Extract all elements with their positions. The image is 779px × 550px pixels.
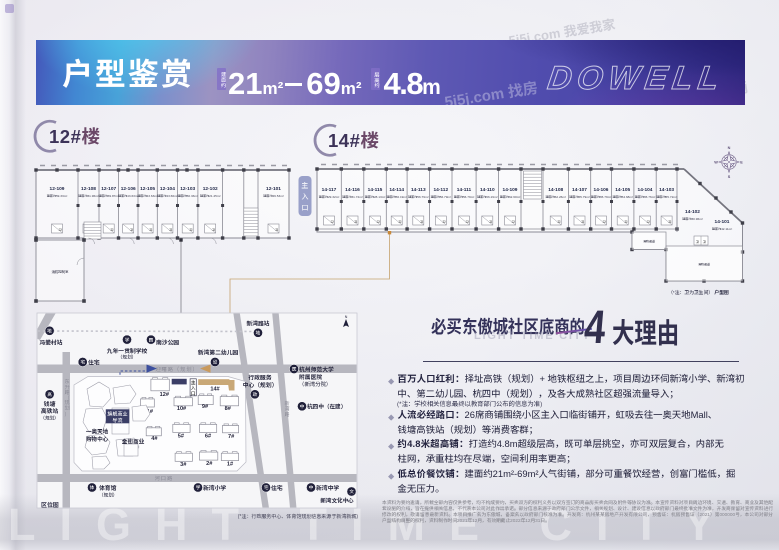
svg-text:中: 中 xyxy=(309,485,314,490)
svg-text:新湾路: 新湾路 xyxy=(284,400,290,417)
svg-text:新湾中学: 新湾中学 xyxy=(316,484,339,492)
svg-text:区位图: 区位图 xyxy=(41,501,59,509)
svg-text:口: 口 xyxy=(191,391,196,396)
svg-text:1#: 1# xyxy=(227,462,234,468)
svg-text:体育馆: 体育馆 xyxy=(99,484,117,492)
svg-text:一奥天地: 一奥天地 xyxy=(86,428,109,436)
svg-text:医: 医 xyxy=(292,367,297,372)
svg-text:幼: 幼 xyxy=(212,360,218,365)
svg-text:金街商业: 金街商业 xyxy=(121,439,145,446)
svg-text:冯娄村站: 冯娄村站 xyxy=(39,339,62,347)
svg-text:宅: 宅 xyxy=(264,484,269,490)
svg-text:杭州师范大学: 杭州师范大学 xyxy=(299,366,334,374)
svg-text:高铁站: 高铁站 xyxy=(41,407,59,415)
svg-text:N: N xyxy=(345,315,348,319)
svg-text:迎曙路（规划）: 迎曙路（规划） xyxy=(155,366,198,373)
svg-text:地: 地 xyxy=(255,331,261,336)
svg-text:14#: 14# xyxy=(210,387,220,393)
svg-text:新湾第二幼儿园: 新湾第二幼儿园 xyxy=(198,349,239,357)
svg-text:政: 政 xyxy=(253,391,258,397)
svg-text:行政服务: 行政服务 xyxy=(248,374,271,382)
svg-text:2#: 2# xyxy=(206,461,213,467)
svg-text:新湾小学: 新湾小学 xyxy=(203,484,226,492)
svg-text:（规划）: （规划） xyxy=(40,415,58,420)
svg-text:4#: 4# xyxy=(151,436,158,442)
svg-text:南沙公园: 南沙公园 xyxy=(156,338,179,346)
svg-text:（新湾分院）: （新湾分院） xyxy=(299,381,331,388)
svg-text:导流: 导流 xyxy=(112,417,123,424)
svg-text:东升路（规划）: 东升路（规划） xyxy=(63,378,70,417)
svg-text:杭四中（在建）: 杭四中（在建） xyxy=(307,403,346,411)
svg-text:（规划）: （规划） xyxy=(118,355,136,360)
svg-text:购物中心: 购物中心 xyxy=(86,435,109,443)
svg-text:宅: 宅 xyxy=(80,359,85,365)
svg-text:5#: 5# xyxy=(178,433,185,439)
svg-text:中: 中 xyxy=(300,404,305,409)
svg-text:入: 入 xyxy=(191,386,196,391)
svg-text:10#: 10# xyxy=(177,406,187,412)
svg-text:新湾文化中心: 新湾文化中心 xyxy=(320,497,354,505)
svg-text:高: 高 xyxy=(47,391,52,397)
svg-text:体: 体 xyxy=(89,485,95,490)
svg-text:住宅: 住宅 xyxy=(271,484,283,492)
svg-text:7#: 7# xyxy=(228,434,235,440)
svg-text:(*注：行政服务中心、体育馆规划信息来源于新湾新城): (*注：行政服务中心、体育馆规划信息来源于新湾新城) xyxy=(238,513,359,520)
svg-text:旗舰商业: 旗舰商业 xyxy=(106,410,127,417)
svg-text:学: 学 xyxy=(125,337,130,342)
svg-text:地: 地 xyxy=(46,329,52,334)
svg-text:新湾路站: 新湾路站 xyxy=(246,320,269,328)
svg-text:河口路: 河口路 xyxy=(155,475,174,482)
svg-text:主: 主 xyxy=(191,379,196,385)
svg-text:住宅: 住宅 xyxy=(88,358,100,366)
svg-text:中心（规划）: 中心（规划） xyxy=(243,381,278,389)
svg-text:（规划）: （规划） xyxy=(99,492,117,497)
svg-text:文: 文 xyxy=(348,489,354,494)
svg-text:8#: 8# xyxy=(225,406,232,412)
svg-text:附属医院: 附属医院 xyxy=(299,373,322,381)
svg-text:园: 园 xyxy=(149,337,154,342)
svg-text:学: 学 xyxy=(196,485,201,490)
svg-text:9#: 9# xyxy=(202,404,209,410)
svg-text:3#: 3# xyxy=(180,462,187,468)
svg-text:钱塘: 钱塘 xyxy=(44,400,56,408)
svg-text:12#: 12# xyxy=(160,392,170,398)
svg-text:6#: 6# xyxy=(205,434,212,440)
